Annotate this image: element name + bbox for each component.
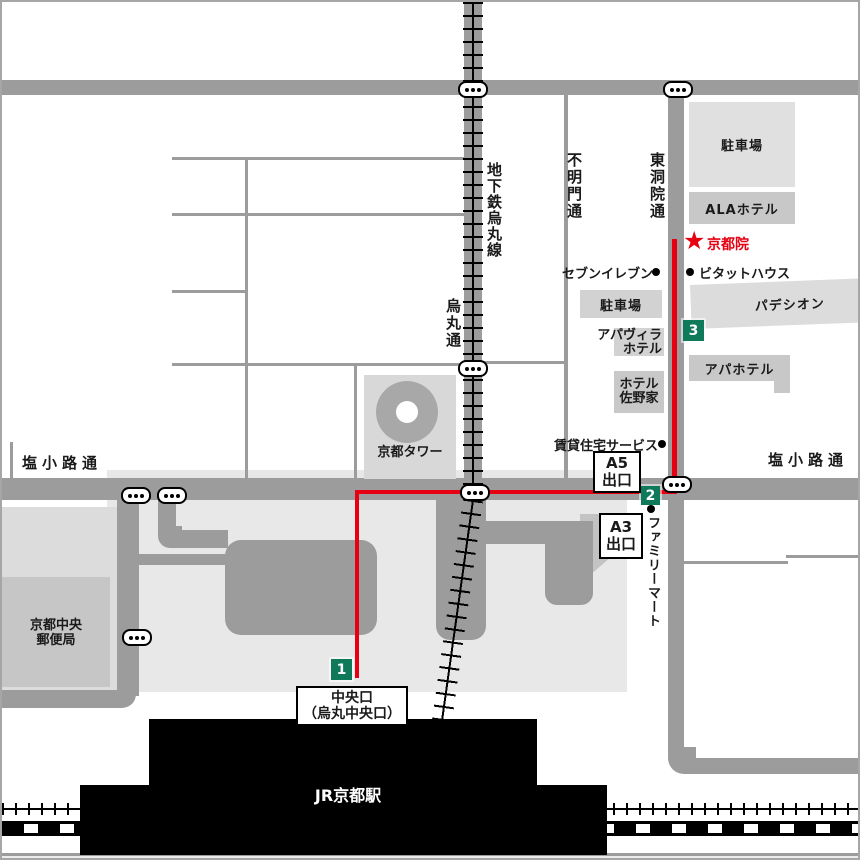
building-ala-hotel: ALAホテル bbox=[689, 192, 795, 224]
exit-a3-box: A3出口 bbox=[599, 513, 643, 559]
street-shiokoji-right: 塩小路通 bbox=[768, 449, 848, 470]
building-apa-hotel: アパホテル bbox=[689, 355, 790, 381]
access-map: 京都タワー 駐車場 ALAホテル パデシオン アパホテル 駐車場 アパヴィラホテ… bbox=[0, 0, 860, 860]
jr-kyoto-station-label: JR京都駅 bbox=[288, 782, 408, 806]
kyoto-tower-label: 京都タワー bbox=[364, 441, 456, 460]
poi-family-mart: ファミリーマート bbox=[643, 516, 662, 628]
building-padession: パデシオン bbox=[690, 278, 860, 329]
side-street-line bbox=[684, 561, 788, 564]
plaza-driveway bbox=[139, 554, 227, 565]
ala-hotel-label: ALAホテル bbox=[705, 199, 778, 218]
route-line-vertical-south bbox=[355, 490, 359, 678]
crosswalk-icon bbox=[122, 629, 152, 646]
exit-a5-box: A5出口 bbox=[593, 451, 641, 493]
route-marker-3: 3 bbox=[683, 320, 704, 341]
subway-karasuma-railway bbox=[463, 2, 483, 500]
street-shiokoji-left: 塩小路通 bbox=[22, 452, 102, 473]
apa-hotel-label: アパホテル bbox=[705, 359, 775, 378]
crosswalk-icon bbox=[460, 484, 490, 501]
post-office-label: 京都中央郵便局 bbox=[2, 618, 110, 648]
block-line bbox=[482, 361, 566, 364]
crosswalk-icon bbox=[662, 476, 692, 493]
poi-rental-service: 賃貸住宅サービス bbox=[554, 435, 656, 454]
building-parking-north: 駐車場 bbox=[689, 102, 795, 187]
poi-dot-icon bbox=[686, 268, 694, 276]
road-postoffice-west bbox=[2, 690, 136, 708]
parking-north-label: 駐車場 bbox=[721, 135, 763, 154]
route-marker-2: 2 bbox=[641, 486, 660, 505]
block-line bbox=[172, 157, 464, 160]
road-plaza-west bbox=[117, 500, 139, 696]
block-line bbox=[245, 157, 248, 480]
poi-bitat-house: ビタットハウス bbox=[699, 263, 790, 282]
kyoto-tower-icon bbox=[376, 381, 438, 443]
street-higashinotoin: 東洞院通 bbox=[647, 152, 668, 220]
plaza-driveway bbox=[170, 530, 228, 548]
block-line bbox=[172, 290, 248, 293]
street-akezumon: 不明門通 bbox=[564, 152, 585, 220]
parking-central-label: 駐車場 bbox=[600, 295, 642, 314]
poi-dot-icon bbox=[647, 505, 655, 513]
apa-villa-label: アパヴィラホテル bbox=[574, 329, 662, 357]
crosswalk-icon bbox=[458, 360, 488, 377]
sanoya-label: ホテル佐野家 bbox=[614, 378, 664, 406]
building-jr-kyoto-station-upper bbox=[149, 719, 537, 785]
poi-seven-eleven: セブンイレブン bbox=[562, 263, 650, 282]
crosswalk-icon bbox=[663, 81, 693, 98]
padession-label: パデシオン bbox=[754, 292, 825, 314]
poi-dot-icon bbox=[652, 268, 660, 276]
street-subway-karasuma-line: 地下鉄烏丸線 bbox=[484, 162, 505, 258]
building-parking-central: 駐車場 bbox=[580, 290, 662, 318]
block-line bbox=[172, 363, 464, 366]
map-bottom-strip bbox=[2, 856, 860, 860]
route-line-vertical-north bbox=[672, 239, 677, 494]
road-higashinotoin-east bbox=[690, 758, 860, 774]
side-street-line bbox=[786, 555, 860, 558]
crosswalk-icon bbox=[458, 81, 488, 98]
road-north bbox=[2, 80, 860, 95]
chuo-gate-box: 中央口（烏丸中央口） bbox=[296, 686, 408, 726]
block-line bbox=[354, 364, 357, 480]
route-marker-1: 1 bbox=[331, 659, 352, 680]
building-apa-hotel-annex bbox=[774, 381, 790, 393]
plaza-driveway bbox=[545, 521, 593, 605]
block-line bbox=[172, 213, 464, 216]
crosswalk-icon bbox=[157, 487, 187, 504]
crosswalk-icon bbox=[121, 487, 151, 504]
block-line bbox=[10, 442, 13, 480]
destination-star-icon: ★ bbox=[683, 228, 705, 253]
poi-dot-icon bbox=[658, 440, 666, 448]
street-karasuma: 烏丸通 bbox=[443, 298, 464, 349]
destination-label: 京都院 bbox=[707, 234, 749, 254]
